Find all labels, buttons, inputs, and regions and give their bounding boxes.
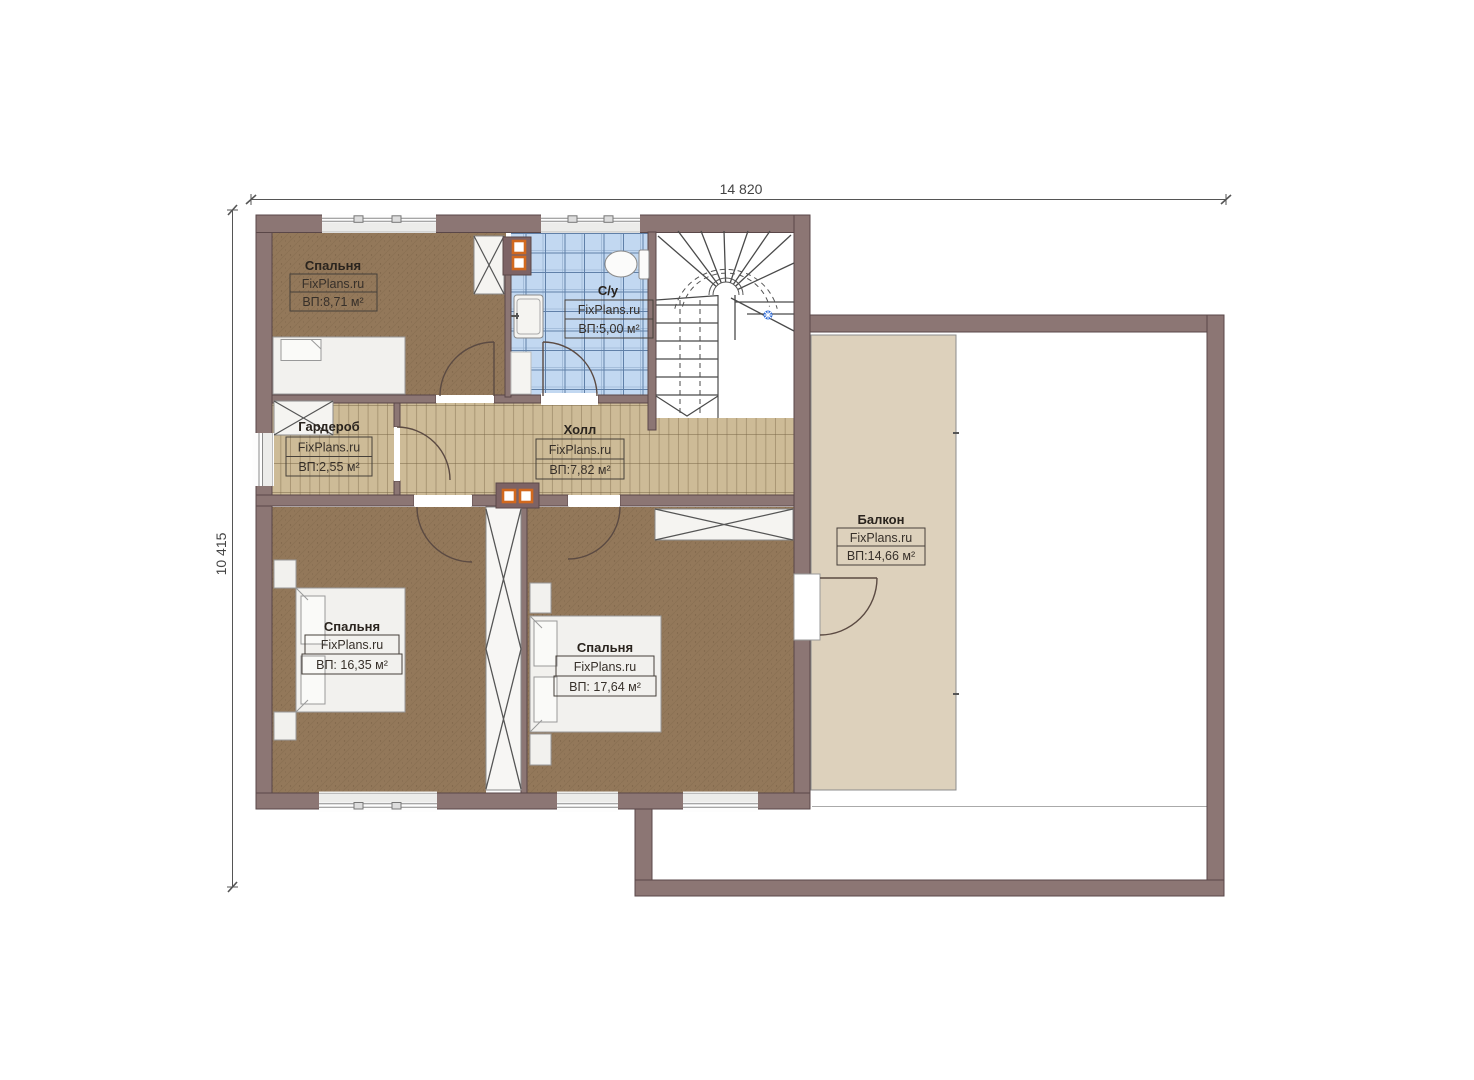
svg-text:ВП: 17,64 м²: ВП: 17,64 м²: [569, 680, 641, 694]
svg-text:FixPlans.ru: FixPlans.ru: [850, 531, 913, 545]
svg-text:Спальня: Спальня: [577, 640, 633, 655]
svg-text:FixPlans.ru: FixPlans.ru: [578, 303, 641, 317]
svg-text:Гардероб: Гардероб: [298, 419, 359, 434]
svg-text:ВП:14,66 м²: ВП:14,66 м²: [847, 549, 915, 563]
svg-text:FixPlans.ru: FixPlans.ru: [321, 638, 384, 652]
svg-text:ВП:5,00 м²: ВП:5,00 м²: [578, 322, 639, 336]
svg-text:ВП:8,71 м²: ВП:8,71 м²: [302, 295, 363, 309]
svg-text:ВП:7,82 м²: ВП:7,82 м²: [549, 463, 610, 477]
svg-text:10 415: 10 415: [213, 532, 229, 575]
svg-text:ВП:2,55 м²: ВП:2,55 м²: [298, 460, 359, 474]
svg-text:Балкон: Балкон: [858, 512, 905, 527]
svg-text:14 820: 14 820: [720, 181, 763, 197]
svg-text:ВП: 16,35 м²: ВП: 16,35 м²: [316, 658, 388, 672]
svg-text:FixPlans.ru: FixPlans.ru: [298, 441, 361, 455]
svg-text:FixPlans.ru: FixPlans.ru: [549, 443, 612, 457]
svg-text:Спальня: Спальня: [305, 258, 361, 273]
svg-text:Спальня: Спальня: [324, 619, 380, 634]
svg-text:FixPlans.ru: FixPlans.ru: [302, 277, 365, 291]
svg-text:С/у: С/у: [598, 283, 619, 298]
svg-text:FixPlans.ru: FixPlans.ru: [574, 660, 637, 674]
svg-text:Холл: Холл: [564, 422, 597, 437]
